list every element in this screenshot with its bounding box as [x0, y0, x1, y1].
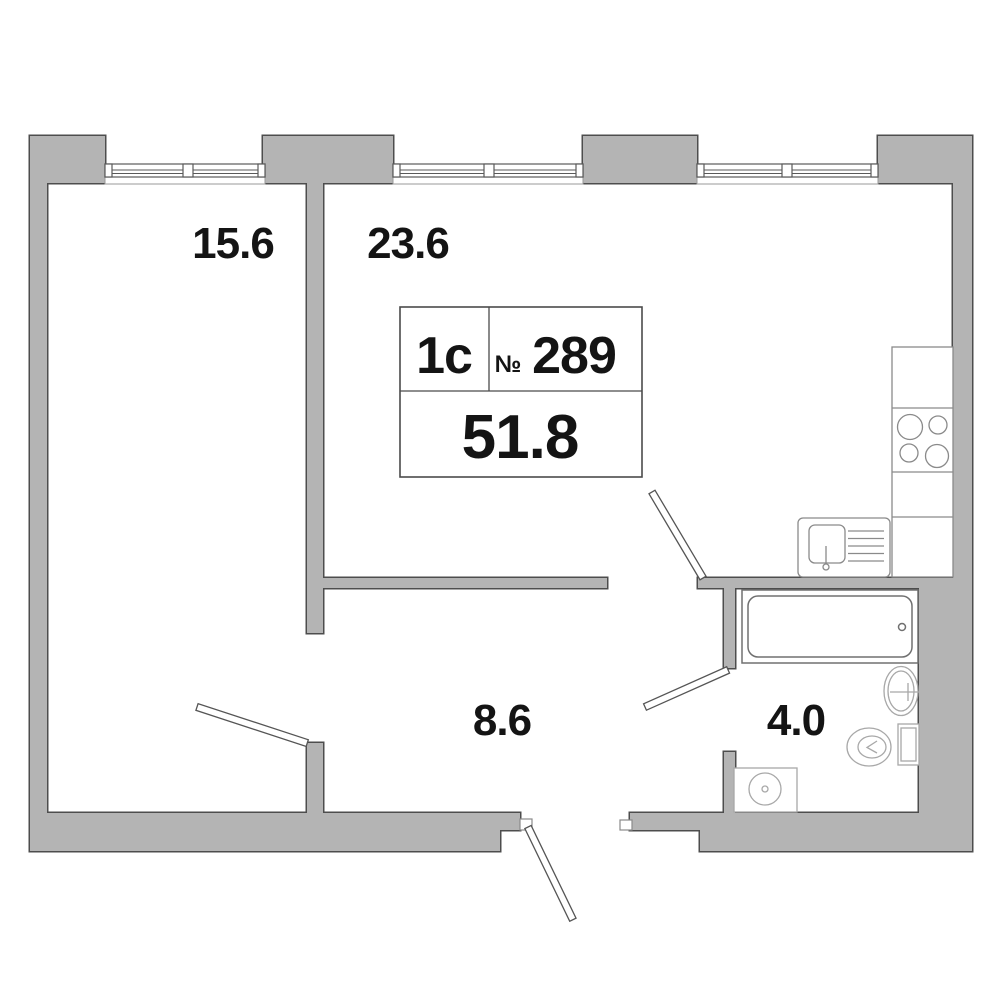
- door-leaf-entrance: [525, 825, 576, 921]
- unit-type-label: 1с: [416, 327, 472, 385]
- unit-number-sign: №: [495, 351, 522, 378]
- floor-plan: 1с № 289 51.8 15.6 23.6 8.6 4.0: [0, 0, 1000, 1000]
- window-kitchen-right: [697, 164, 878, 184]
- room-area-bedroom: 15.6: [192, 219, 274, 268]
- room-area-bathroom: 4.0: [767, 696, 825, 745]
- door-leaf-kitchen: [649, 490, 706, 580]
- unit-total-area: 51.8: [462, 403, 579, 472]
- window-kitchen-left: [393, 164, 583, 184]
- room-area-kitchen-living: 23.6: [367, 219, 449, 268]
- kitchen-sink: [798, 518, 890, 577]
- door-leaf-bathroom: [644, 667, 730, 710]
- washing-machine: [734, 768, 797, 812]
- door-leaf-bedroom: [196, 704, 308, 747]
- unit-number: 289: [532, 327, 616, 385]
- room-area-hallway: 8.6: [473, 696, 531, 745]
- bathtub: [742, 590, 918, 663]
- kitchen-counter: [892, 347, 953, 577]
- entrance-door-frame-right: [620, 820, 632, 830]
- window-bedroom: [105, 164, 265, 184]
- floor-plan-page: 1с № 289 51.8 15.6 23.6 8.6 4.0: [0, 0, 1000, 1000]
- toilet: [847, 724, 919, 766]
- unit-info-card: 1с № 289 51.8: [400, 307, 642, 477]
- doors: [196, 490, 730, 921]
- bathroom-sink: [884, 667, 919, 716]
